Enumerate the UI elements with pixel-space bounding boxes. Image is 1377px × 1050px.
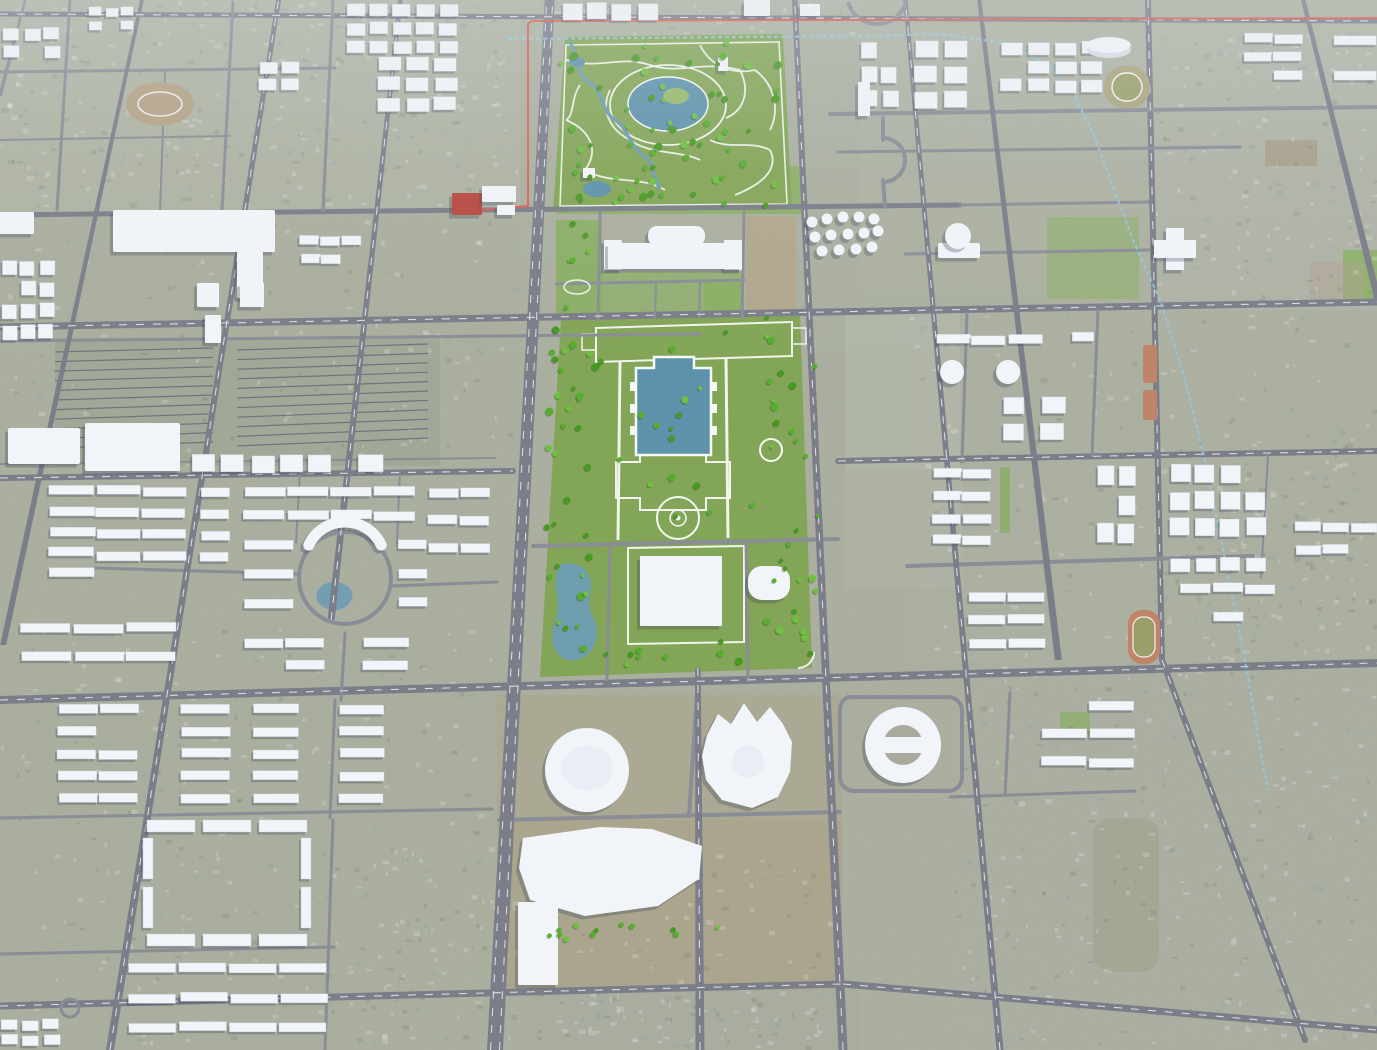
haze-overlay xyxy=(0,0,1377,1050)
city-aerial-render xyxy=(0,0,1377,1050)
atmosphere xyxy=(0,0,1377,1050)
city-map-svg xyxy=(0,0,1377,1050)
